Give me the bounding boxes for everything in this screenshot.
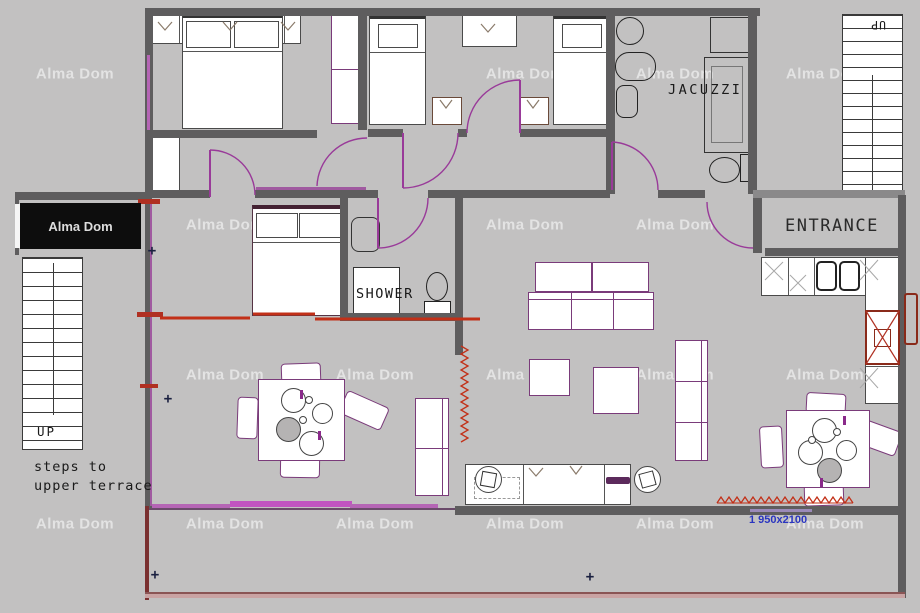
watermark-text: Alma Dom (36, 516, 114, 533)
office-chair-1 (475, 466, 502, 493)
wall-bathroom-right (748, 8, 757, 194)
watermark-text: Alma Dom (486, 516, 564, 533)
sofa-back-cushion-1 (535, 262, 592, 292)
glass (299, 416, 307, 424)
nightstand-2 (432, 97, 462, 125)
cutlery (843, 416, 846, 425)
radiator-zigzag-vertical (461, 346, 468, 442)
bed-single-left (369, 15, 426, 125)
watermark-text: Alma Dom (636, 217, 714, 234)
wall-entrance-bottom (765, 248, 905, 256)
terrace-door-lavender (750, 509, 812, 512)
coffee-table-1 (529, 359, 570, 396)
wall-entrance-left (753, 198, 762, 253)
steps-note-line2: upper terrace (34, 478, 153, 494)
brand-box-label: Alma Dom (48, 219, 112, 234)
toilet-1 (615, 52, 656, 81)
bed-double-master (252, 205, 345, 316)
door-leaf-on-wall (256, 187, 366, 190)
staircase-left-up-label: UP (37, 424, 56, 439)
glass (808, 436, 816, 444)
staircase-right-rail (872, 75, 873, 195)
survey-plus-mark: + (151, 567, 159, 583)
toilet-2 (709, 157, 740, 183)
plate (312, 403, 333, 424)
wall-red-tick-1 (138, 199, 160, 204)
wall-brandbox-top (15, 192, 145, 200)
wall-hall-4 (658, 190, 705, 198)
terrace-bottom-edge (145, 594, 905, 598)
dimension-text: 1 950x2100 (749, 514, 807, 526)
glass (305, 396, 313, 404)
wall-bottom-right (455, 506, 905, 515)
wall-shower-left (340, 195, 348, 321)
plate (836, 440, 857, 461)
survey-plus-mark: + (586, 569, 594, 585)
wall-shower-right (455, 195, 463, 355)
cutlery (300, 390, 303, 399)
bidet (616, 85, 638, 118)
sofa-back-cushion-2 (592, 262, 649, 292)
kitchen-sink-basin-1 (816, 261, 837, 291)
wall-hall-1 (145, 190, 210, 198)
cutlery (318, 431, 321, 440)
coffee-table-2 (593, 367, 639, 414)
door-arc-twin-b (467, 80, 520, 133)
wall-bedroom1-bottom (145, 130, 317, 138)
wall-right (898, 195, 906, 598)
survey-plus-mark: + (164, 391, 172, 407)
terrace-window-track (145, 508, 455, 510)
dining-chair-right-l (338, 390, 390, 432)
bench-sofa (415, 398, 449, 496)
terrace-window-3 (350, 504, 438, 508)
watermark-text: Alma Dom (186, 516, 264, 533)
wall-twinroom-pier (458, 129, 467, 137)
terrace-left-edge (145, 506, 149, 600)
office-chair-2 (634, 466, 661, 493)
wall-entrance-top (753, 190, 905, 198)
wall-red-tick-2 (137, 312, 163, 317)
watermark-text: Alma Dom (336, 367, 414, 384)
dining-chair-left-r (759, 425, 784, 468)
wall-twinroom-a (368, 129, 403, 137)
jacuzzi-label: JACUZZI (668, 82, 742, 98)
brand-box: Alma Dom (20, 203, 141, 249)
door-arc-bedroom1 (317, 138, 367, 186)
wall-bathroom-left (606, 8, 615, 194)
door-arc-twin-a (403, 133, 458, 188)
staircase-right-up-label: UP (846, 18, 886, 32)
wall-bedroom1-right (358, 8, 367, 130)
terrace-window-2 (230, 501, 352, 507)
bed-single-right (553, 15, 610, 125)
dining-chair-left-l (236, 397, 258, 440)
window-left-wall (147, 55, 150, 130)
stove (865, 310, 900, 365)
glass (833, 428, 841, 436)
steps-note-line1: steps to (34, 459, 107, 475)
bed-double-1 (182, 15, 283, 129)
wall-hall-2 (255, 190, 378, 198)
staircase-left-rail (53, 263, 54, 415)
jacuzzi-tub (704, 57, 751, 153)
floor-plan-canvas: UP UP Alma Dom steps to upper terrace (0, 0, 920, 613)
wardrobe-1 (331, 15, 359, 124)
watermark-text: Alma Dom (486, 217, 564, 234)
nightstand-3 (519, 97, 549, 125)
washbasin-round (616, 17, 644, 45)
exterior-red-unit (904, 293, 918, 345)
kitchen-sink-basin-2 (839, 261, 860, 291)
wall-twinroom-b (520, 129, 610, 137)
toilet-3 (426, 272, 448, 301)
shower-label: SHOWER (356, 286, 414, 302)
door-arc-master (210, 150, 255, 195)
watermark-text: Alma Dom (186, 367, 264, 384)
wall-top (145, 8, 760, 16)
cutlery (820, 478, 823, 487)
wall-red-tick-3 (140, 384, 158, 388)
entrance-label: ENTRANCE (785, 216, 879, 236)
watermark-text: Alma Dom (786, 367, 864, 384)
staircase-left (22, 257, 83, 450)
window-twinroom (462, 13, 517, 47)
door-arc-shower (378, 198, 428, 248)
watermark-text: Alma Dom (636, 516, 714, 533)
watermark-text: Alma Dom (36, 66, 114, 83)
shower-cabinet (351, 217, 380, 252)
terrace-window-1 (152, 504, 230, 508)
laptop (606, 477, 630, 484)
brand-box-sliver (15, 204, 20, 248)
watermark-text: Alma Dom (336, 516, 414, 533)
survey-plus-mark: + (148, 243, 156, 259)
staircase-right (842, 14, 903, 195)
plate (276, 417, 301, 442)
bath-cabinet (710, 17, 750, 53)
nightstand-1 (150, 137, 180, 192)
door-arc-bathroom (612, 142, 658, 190)
sofa-vertical (675, 340, 708, 461)
sofa-seat (528, 292, 654, 330)
wall-shower-bottom (340, 313, 463, 321)
